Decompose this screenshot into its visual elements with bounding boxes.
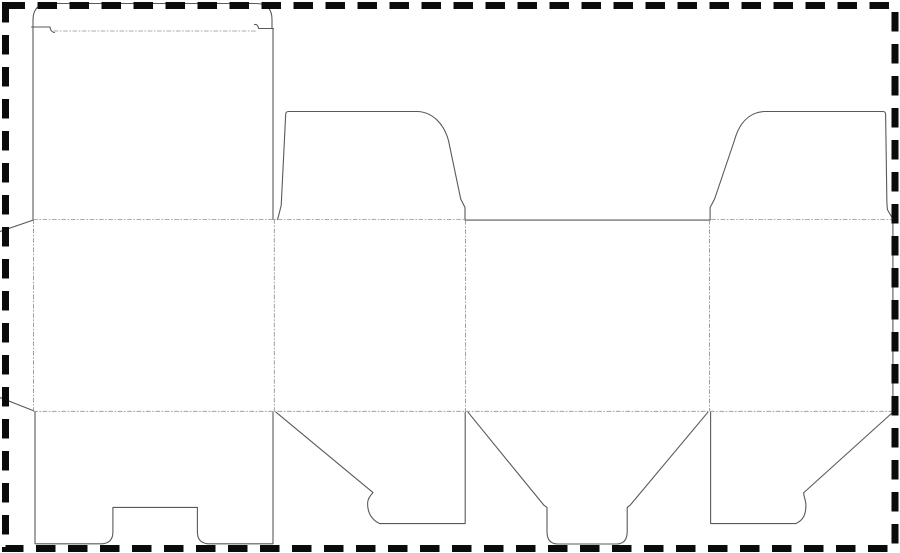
dieline-canvas bbox=[0, 0, 900, 553]
dieline-sheet bbox=[0, 0, 900, 553]
sheet-background bbox=[0, 0, 900, 553]
